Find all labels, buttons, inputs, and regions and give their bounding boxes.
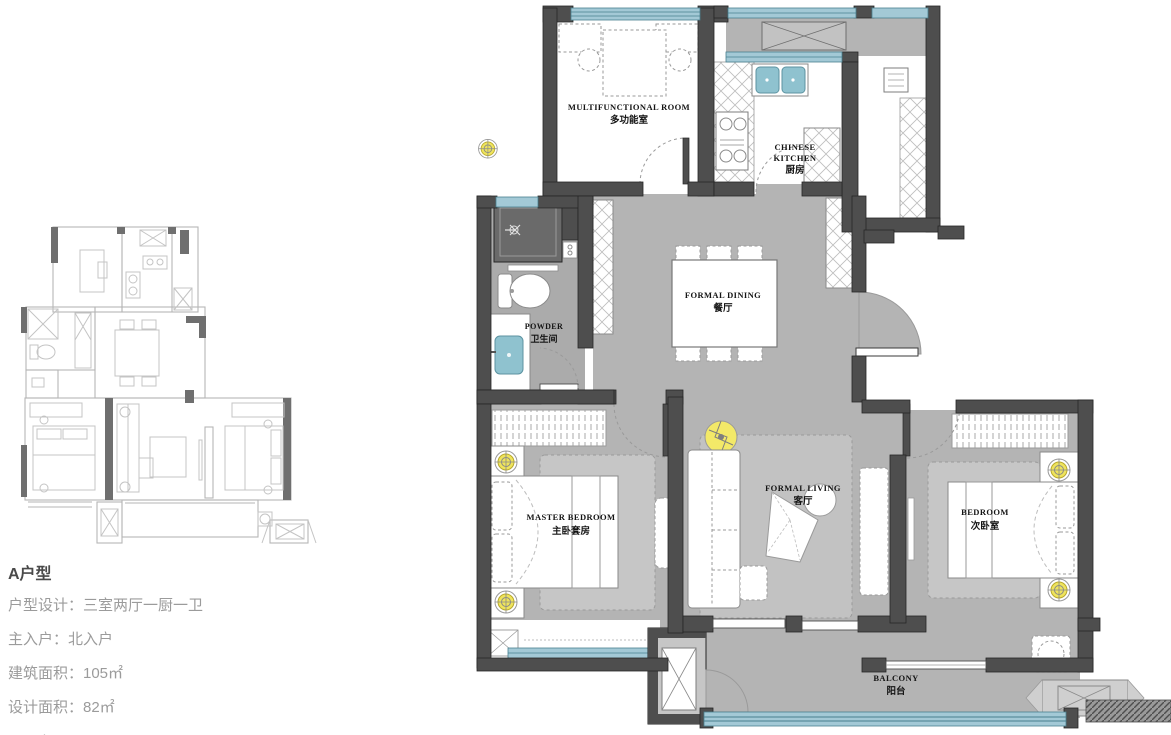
room-label-master-en: MASTER BEDROOM xyxy=(527,512,616,522)
bed xyxy=(948,482,1078,578)
bedside-lamp-icon xyxy=(1048,459,1070,481)
spec-design-area: 设计面积：82㎡ xyxy=(8,696,428,717)
info-panel: A户型 户型设计：三室两厅一厨一卫 主入户：北入户 建筑面积：105㎡ 设计面积… xyxy=(8,560,428,735)
neighbor-wall-hatch xyxy=(1086,700,1171,722)
tv-panel xyxy=(908,498,914,560)
ceiling-fan-lamp-icon xyxy=(705,421,737,453)
room-label-living-zh: 客厅 xyxy=(792,495,813,507)
spec-layout: 户型设计：三室两厅一厨一卫 xyxy=(8,594,428,615)
unit-title: A户型 xyxy=(8,560,428,584)
room-label-powder-en: POWDER xyxy=(525,322,563,331)
vanity xyxy=(488,314,530,396)
entry-door xyxy=(856,292,921,356)
room-label-kitchen-zh: 厨房 xyxy=(785,164,804,176)
room-label-living-en: FORMAL LIVING xyxy=(765,483,841,493)
room-label-bedroom-zh: 次卧室 xyxy=(971,520,1000,532)
room-label-powder-zh: 卫生间 xyxy=(530,333,557,344)
bedside-lamp-icon xyxy=(1048,579,1070,601)
room-label-balcony-zh: 阳台 xyxy=(886,685,906,697)
bedside-lamp-icon xyxy=(495,591,517,613)
storage-cabinet xyxy=(593,200,613,334)
wardrobe xyxy=(492,410,606,446)
room-label-multifunctional-en: MULTIFUNCTIONAL ROOM xyxy=(568,102,690,112)
room-label-dining-en: FORMAL DINING xyxy=(685,290,761,300)
door-leaf xyxy=(856,348,918,356)
balcony-closet xyxy=(648,628,706,724)
door-leaf xyxy=(683,138,689,184)
toilet xyxy=(498,274,550,308)
shower xyxy=(494,202,562,262)
room-label-kitchen-en1: CHINESE xyxy=(774,142,815,152)
room-label-balcony-en: BALCONY xyxy=(873,673,918,683)
bedside-lamp-icon xyxy=(495,451,517,473)
room-label-bedroom-en: BEDROOM xyxy=(961,507,1009,517)
ceiling-lamp-icon xyxy=(479,139,498,158)
tv-cabinet xyxy=(860,468,888,595)
wardrobe xyxy=(952,414,1068,448)
room-label-dining-zh: 餐厅 xyxy=(712,302,733,314)
plan-caption: 平面布置图 / FURNITURE&FURNISHING LEVEL xyxy=(8,731,428,735)
mini-wall-accents xyxy=(21,227,291,500)
floor-plan-page: MULTIFUNCTIONAL ROOM 多功能室 CHINESE KITCHE… xyxy=(0,0,1171,735)
spec-entry: 主入户：北入户 xyxy=(8,628,428,649)
room-label-multifunctional-zh: 多功能室 xyxy=(610,114,649,126)
main-floor-plan: MULTIFUNCTIONAL ROOM 多功能室 CHINESE KITCHE… xyxy=(470,0,1171,735)
room-label-master-zh: 主卧套房 xyxy=(552,525,590,537)
spec-built-area: 建筑面积：105㎡ xyxy=(8,662,428,683)
overview-floor-plan xyxy=(15,220,320,555)
mini-walls xyxy=(25,227,308,543)
room-label-kitchen-en2: KITCHEN xyxy=(774,153,817,163)
pantry-cabinet xyxy=(900,98,928,218)
